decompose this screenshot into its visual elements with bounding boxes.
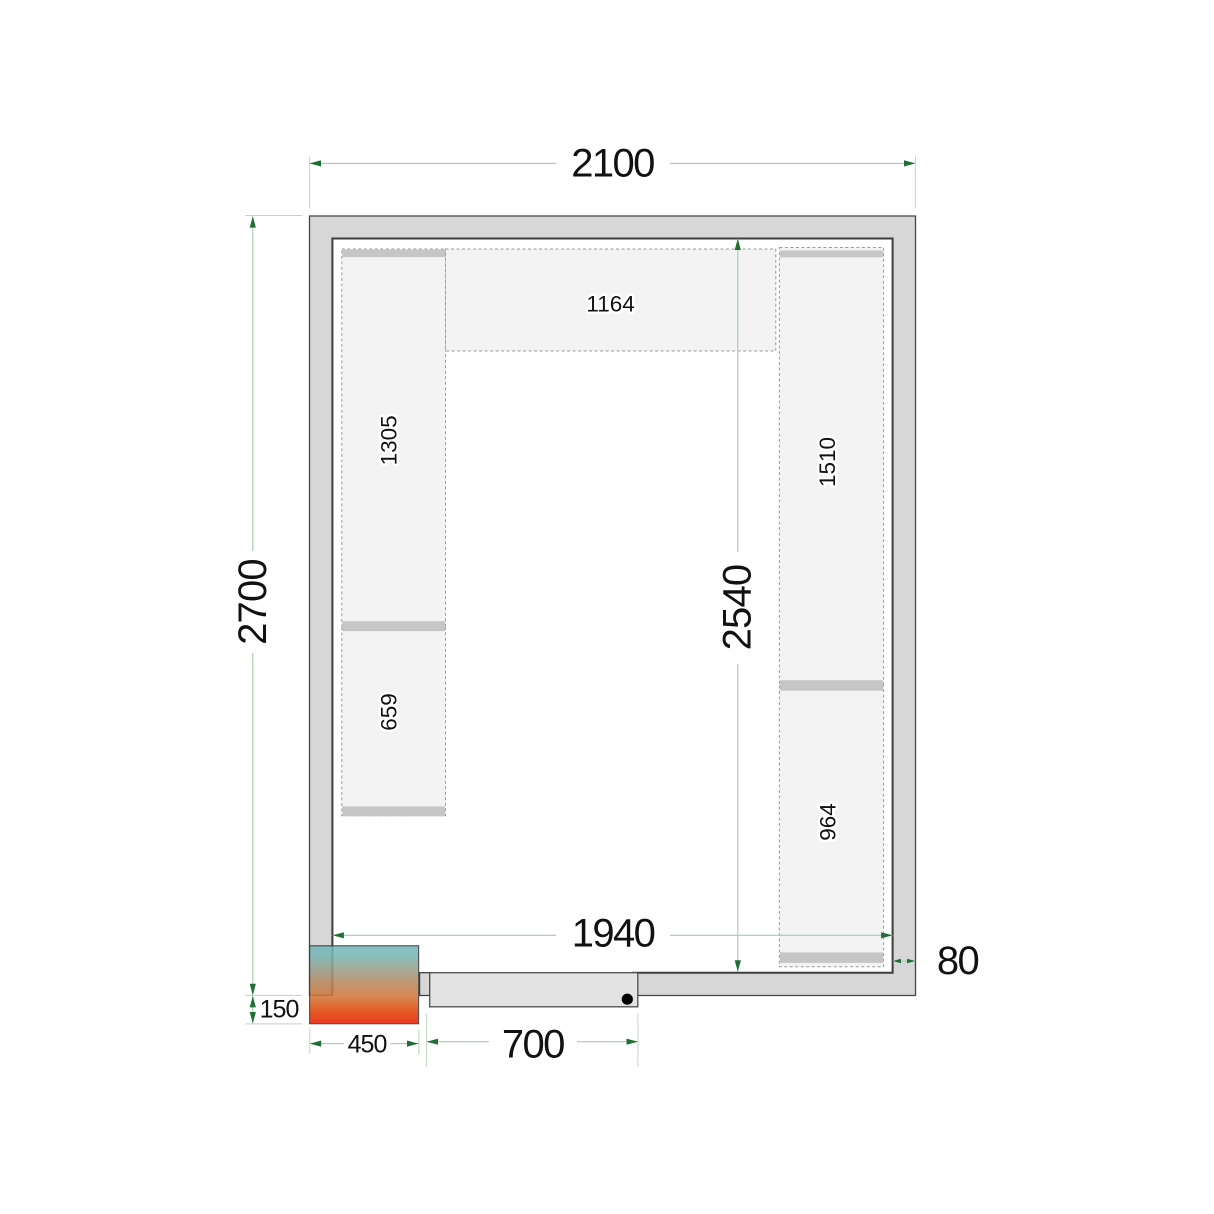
svg-text:80: 80 (937, 939, 979, 983)
svg-text:1164: 1164 (586, 292, 634, 317)
svg-text:1305: 1305 (377, 415, 402, 465)
svg-text:1510: 1510 (815, 437, 840, 487)
svg-text:2700: 2700 (231, 559, 275, 645)
svg-text:964: 964 (816, 803, 841, 841)
svg-text:150: 150 (260, 996, 299, 1024)
svg-text:700: 700 (502, 1023, 564, 1067)
svg-text:659: 659 (377, 693, 402, 731)
svg-text:2100: 2100 (571, 142, 654, 186)
svg-text:2540: 2540 (716, 565, 760, 651)
svg-text:450: 450 (348, 1031, 387, 1059)
svg-text:1940: 1940 (572, 912, 655, 956)
